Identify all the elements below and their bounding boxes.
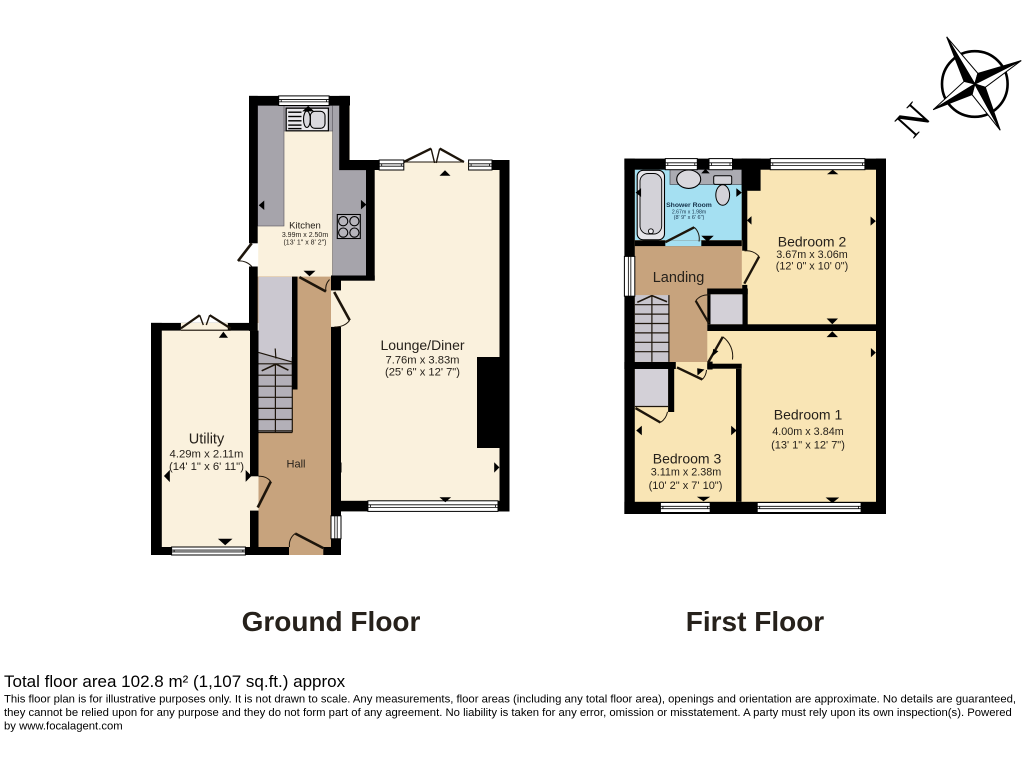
svg-text:4.29m x 2.11m: 4.29m x 2.11m: [170, 448, 244, 460]
svg-text:Ground Floor: Ground Floor: [242, 606, 421, 637]
svg-text:(13' 1" x 8' 2"): (13' 1" x 8' 2"): [283, 240, 326, 247]
svg-text:(14' 1" x 6' 11"): (14' 1" x 6' 11"): [169, 461, 244, 473]
svg-text:7.76m x 3.83m: 7.76m x 3.83m: [386, 355, 460, 367]
svg-text:This floor plan is for illustr: This floor plan is for illustrative purp…: [4, 694, 1016, 706]
svg-text:Hall: Hall: [287, 458, 306, 470]
svg-text:Utility: Utility: [189, 432, 225, 448]
svg-text:Bedroom 3: Bedroom 3: [653, 450, 722, 466]
svg-text:3.11m x 2.38m: 3.11m x 2.38m: [651, 467, 722, 479]
svg-text:Total floor area 102.8 m² (1,1: Total floor area 102.8 m² (1,107 sq.ft.)…: [4, 672, 346, 691]
svg-text:they cannot be relied upon for: they cannot be relied upon for any purpo…: [4, 707, 1012, 719]
svg-text:(12' 0" x 10' 0"): (12' 0" x 10' 0"): [776, 260, 848, 272]
svg-text:3.99m x 2.50m: 3.99m x 2.50m: [282, 232, 328, 239]
svg-text:Shower Room: Shower Room: [666, 202, 712, 209]
svg-text:(25' 6" x 12' 7"): (25' 6" x 12' 7"): [385, 367, 460, 379]
svg-text:(10' 2" x 7' 10"): (10' 2" x 7' 10"): [649, 480, 723, 492]
svg-text:4.00m x 3.84m: 4.00m x 3.84m: [772, 426, 843, 438]
svg-text:Bedroom 2: Bedroom 2: [778, 233, 847, 249]
svg-text:Bedroom 1: Bedroom 1: [774, 407, 843, 423]
svg-text:(8' 9" x 6' 6"): (8' 9" x 6' 6"): [674, 215, 705, 221]
svg-text:First Floor: First Floor: [686, 606, 825, 637]
svg-text:(13' 1" x 12' 7"): (13' 1" x 12' 7"): [771, 439, 845, 451]
svg-text:Landing: Landing: [653, 270, 705, 286]
svg-text:Kitchen: Kitchen: [289, 220, 321, 231]
svg-text:3.67m x 3.06m: 3.67m x 3.06m: [776, 249, 847, 261]
svg-text:by www.focalagent.com: by www.focalagent.com: [4, 721, 123, 733]
svg-text:Lounge/Diner: Lounge/Diner: [380, 337, 464, 353]
